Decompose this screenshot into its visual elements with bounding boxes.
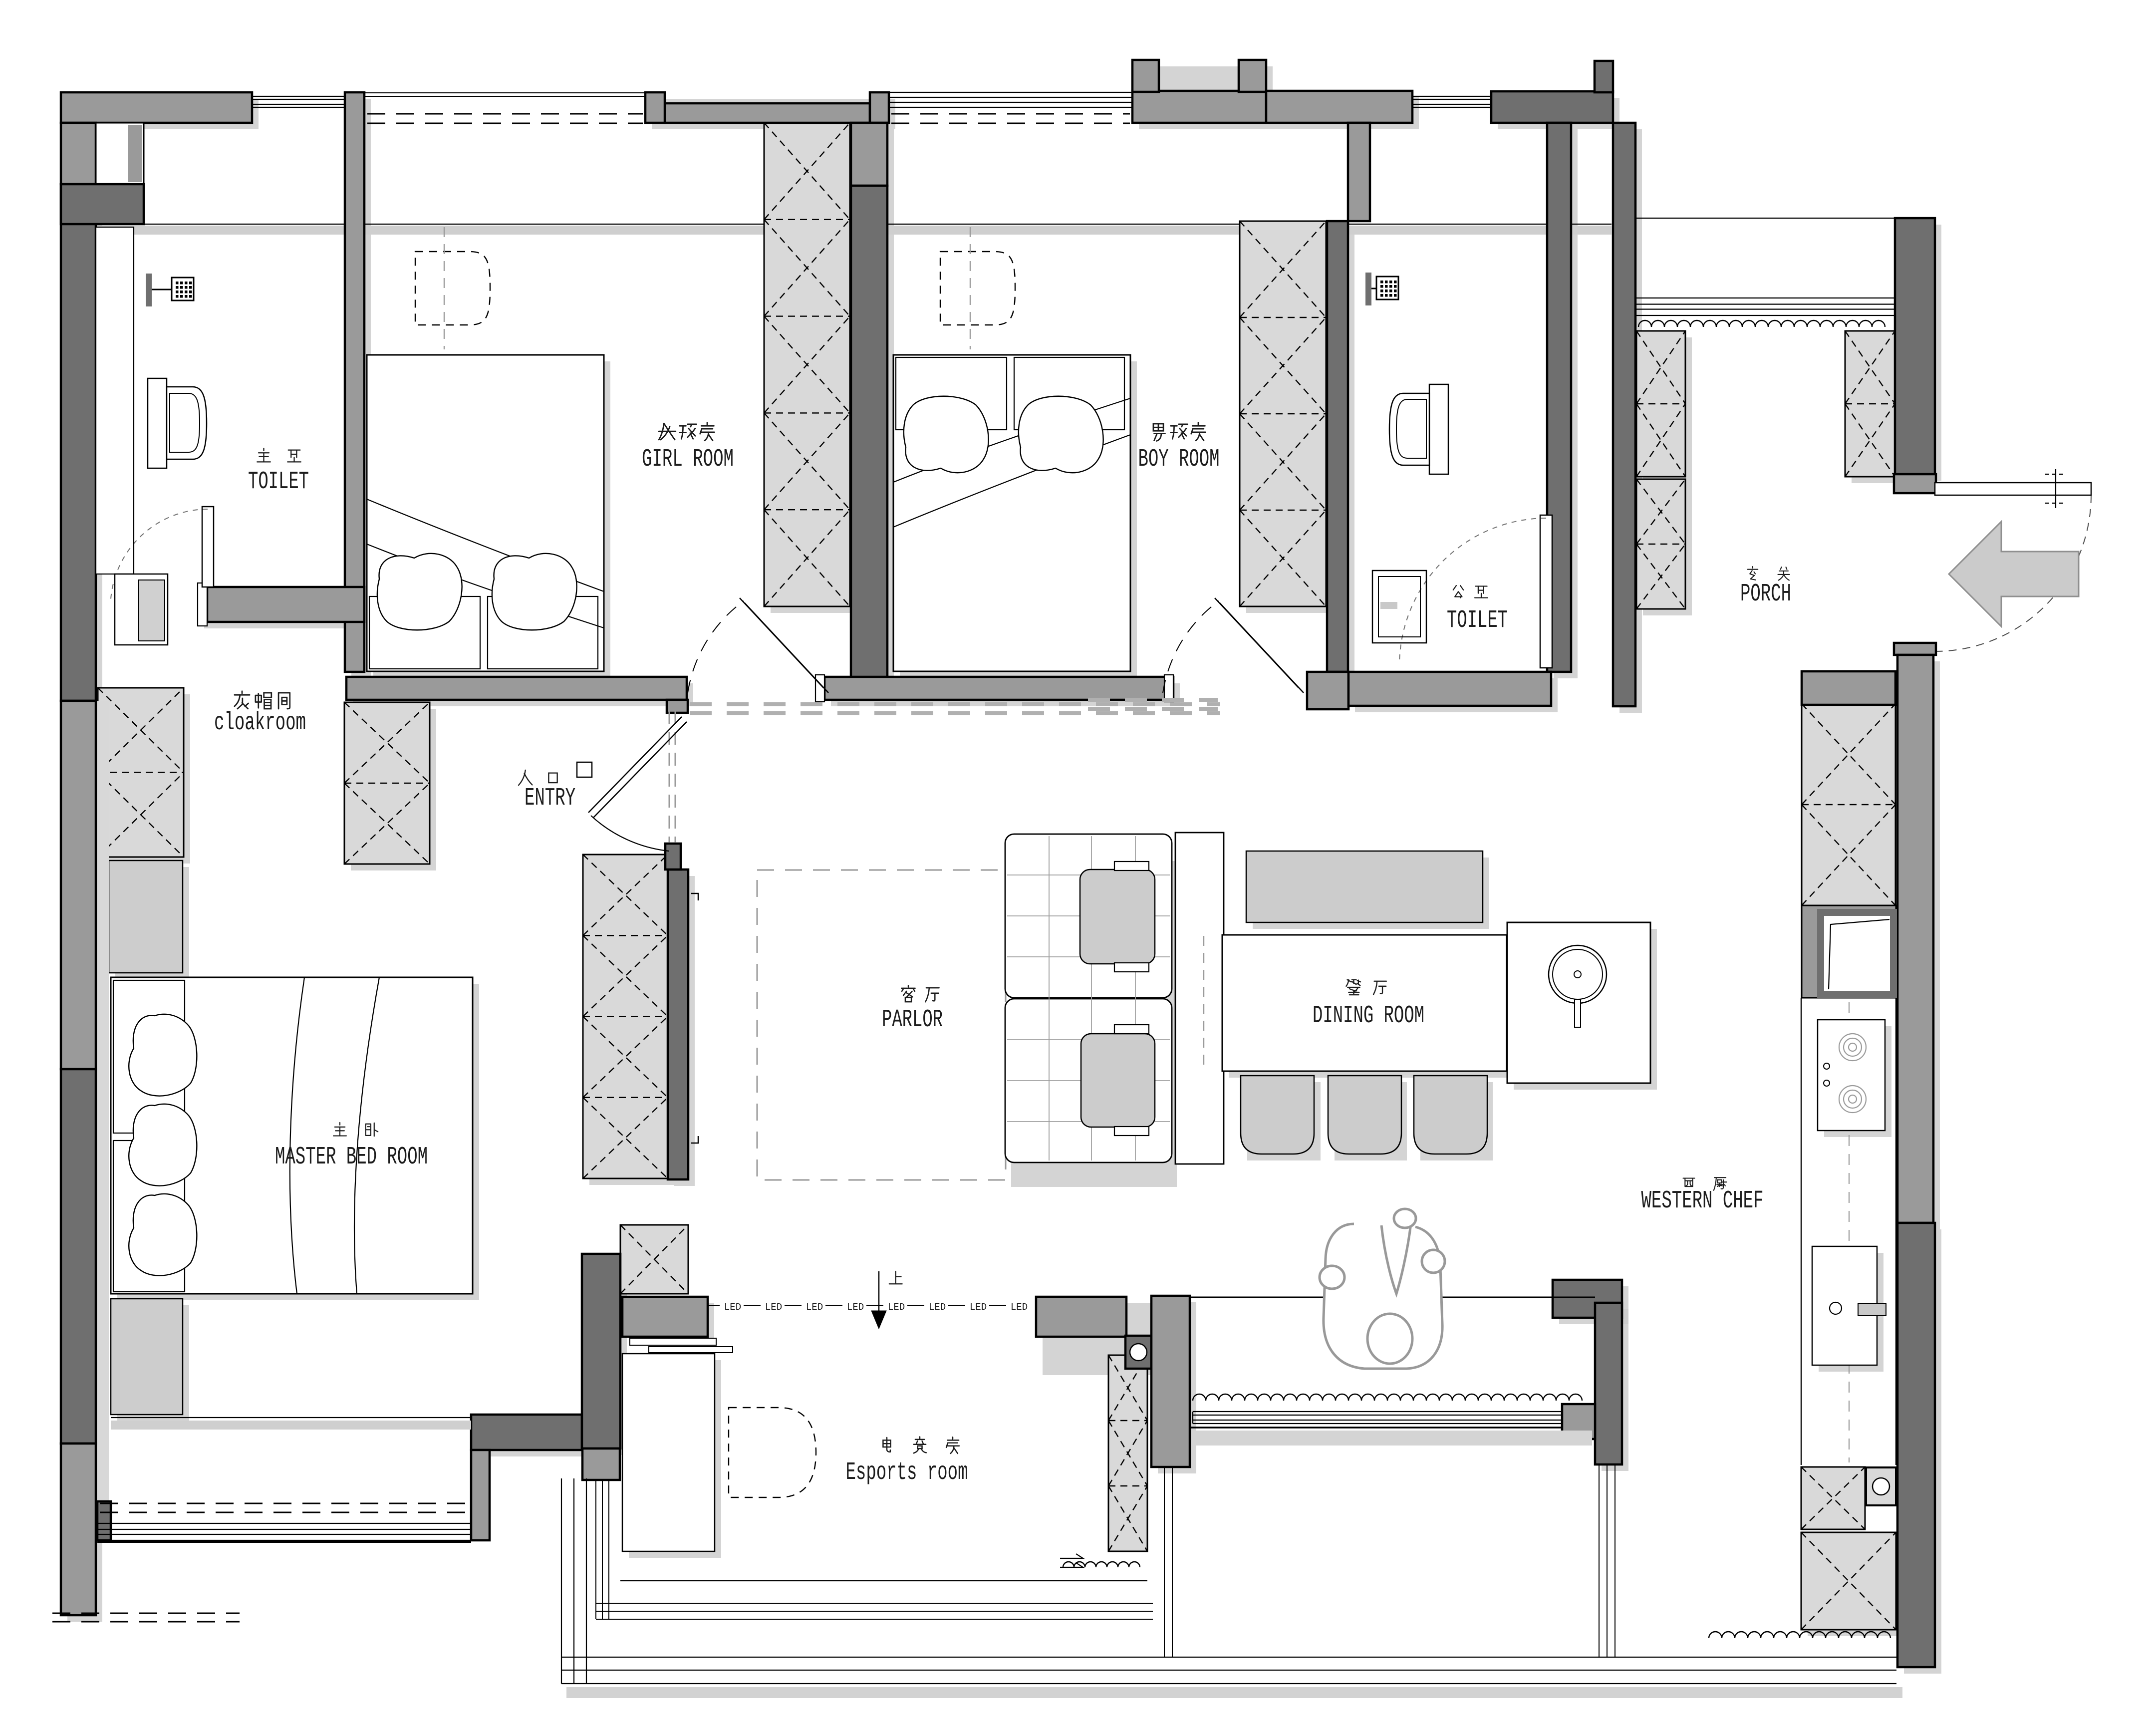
svg-text:GIRL ROOM: GIRL ROOM [642, 445, 734, 474]
svg-text:PORCH: PORCH [1740, 580, 1791, 608]
svg-text:WESTERN CHEF: WESTERN CHEF [1641, 1187, 1764, 1215]
svg-text:LED: LED [847, 1302, 864, 1313]
svg-text:PARLOR: PARLOR [882, 1006, 943, 1034]
svg-text:MASTER BED ROOM: MASTER BED ROOM [275, 1143, 428, 1171]
svg-text:cloakroom: cloakroom [214, 709, 306, 737]
svg-text:TOILET: TOILET [248, 468, 309, 496]
svg-text:TOILET: TOILET [1447, 606, 1508, 635]
svg-text:Esports room: Esports room [846, 1458, 968, 1487]
svg-text:LED: LED [806, 1302, 823, 1313]
svg-text:LED: LED [929, 1302, 946, 1313]
svg-text:BOY ROOM: BOY ROOM [1138, 445, 1220, 474]
svg-text:LED: LED [888, 1302, 905, 1313]
svg-text:LED: LED [724, 1302, 741, 1313]
svg-text:LED: LED [970, 1302, 987, 1313]
svg-text:LED: LED [765, 1302, 782, 1313]
svg-text:DINING ROOM: DINING ROOM [1313, 1002, 1424, 1030]
svg-text:LED: LED [1011, 1302, 1028, 1313]
svg-text:ENTRY: ENTRY [525, 784, 575, 813]
